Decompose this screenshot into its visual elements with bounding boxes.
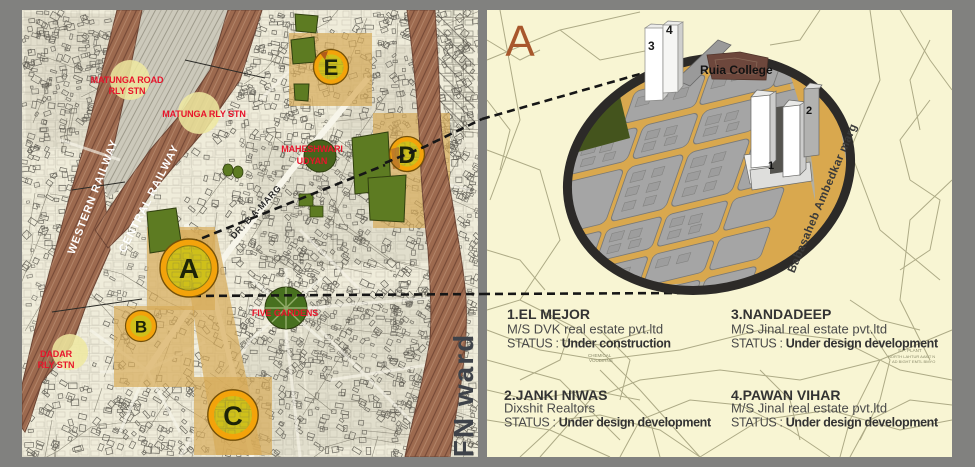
svg-text:RLY STN: RLY STN [109, 86, 146, 96]
svg-text:M/S Jinal real estate pvt.ltd: M/S Jinal real estate pvt.ltd [731, 322, 887, 337]
svg-text:STATUS : Under construction: STATUS : Under construction [507, 337, 671, 351]
svg-text:E: E [324, 55, 339, 80]
svg-text:Dixshit Realtors: Dixshit Realtors [504, 401, 596, 416]
svg-text:M/S DVK real estate pvt.ltd: M/S DVK real estate pvt.ltd [507, 322, 663, 337]
svg-text:VOUDIRNS: VOUDIRNS [589, 358, 613, 363]
svg-text:RLY STN: RLY STN [38, 360, 75, 370]
svg-text:DADAR: DADAR [40, 349, 73, 359]
svg-text:1: 1 [768, 160, 774, 172]
svg-text:C: C [223, 401, 243, 431]
svg-text:FN ward: FN ward [448, 333, 479, 457]
svg-text:M/S Jinal real estate pvt.ltd: M/S Jinal real estate pvt.ltd [731, 401, 887, 416]
svg-text:A: A [505, 17, 535, 66]
svg-text:MAHESHWARI: MAHESHWARI [281, 144, 343, 154]
svg-text:FIVE GARDENS: FIVE GARDENS [252, 308, 318, 318]
svg-text:STATUS : Under design developm: STATUS : Under design development [731, 416, 939, 430]
svg-text:2: 2 [806, 105, 812, 117]
svg-text:UDYAN: UDYAN [297, 156, 328, 166]
svg-text:3: 3 [648, 39, 655, 53]
svg-text:STATUS : Under design developm: STATUS : Under design development [731, 337, 939, 351]
svg-text:MATUNGA RLY STN: MATUNGA RLY STN [162, 109, 246, 119]
svg-text:STATUS : Under design developm: STATUS : Under design development [504, 416, 712, 430]
svg-text:Ruia College: Ruia College [700, 63, 773, 77]
svg-text:MATUNGA ROAD: MATUNGA ROAD [91, 75, 164, 85]
svg-text:A: A [179, 253, 199, 284]
svg-text:1.EL MEJOR: 1.EL MEJOR [507, 306, 590, 322]
svg-text:3.NANDADEEP: 3.NANDADEEP [731, 306, 831, 322]
svg-text:AD BIGHT EMTL BMYO: AD BIGHT EMTL BMYO [892, 359, 935, 364]
svg-text:4: 4 [666, 23, 673, 37]
svg-text:B: B [135, 318, 147, 337]
